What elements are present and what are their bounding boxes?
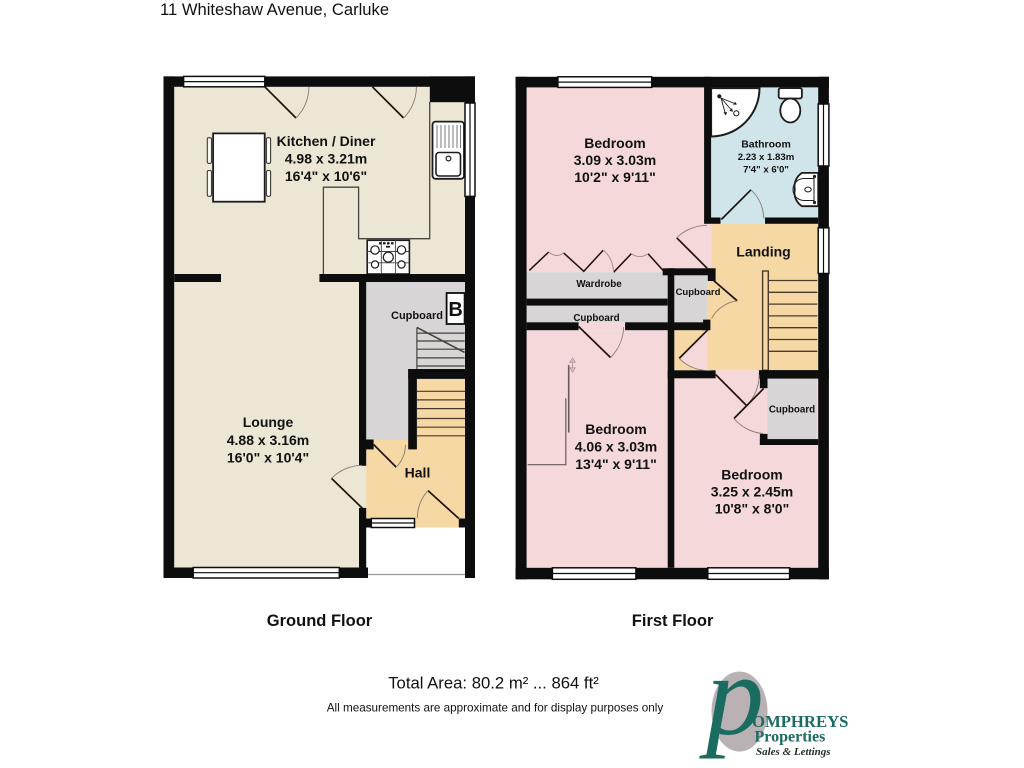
svg-text:Hall: Hall <box>405 465 431 481</box>
svg-text:Bathroom: Bathroom <box>741 139 791 151</box>
svg-text:4.06 x 3.03m: 4.06 x 3.03m <box>575 439 658 455</box>
svg-text:Bedroom: Bedroom <box>585 421 646 437</box>
svg-text:16'0" x 10'4": 16'0" x 10'4" <box>227 450 309 466</box>
svg-text:13'4" x 9'11": 13'4" x 9'11" <box>575 456 656 472</box>
svg-text:4.88 x 3.16m: 4.88 x 3.16m <box>227 432 310 448</box>
svg-text:10'8" x 8'0": 10'8" x 8'0" <box>715 501 789 517</box>
svg-text:3.25 x 2.45m: 3.25 x 2.45m <box>711 484 794 500</box>
svg-text:10'2" x 9'11": 10'2" x 9'11" <box>574 169 655 185</box>
svg-text:Total Area: 80.2 m² ... 864 ft: Total Area: 80.2 m² ... 864 ft² <box>388 674 599 693</box>
svg-text:First Floor: First Floor <box>632 612 714 630</box>
svg-text:Kitchen / Diner: Kitchen / Diner <box>277 133 376 149</box>
svg-text:B: B <box>448 299 462 321</box>
svg-text:Lounge: Lounge <box>243 414 294 430</box>
svg-text:11 Whiteshaw Avenue, Carluke: 11 Whiteshaw Avenue, Carluke <box>160 0 389 19</box>
svg-text:Cupboard: Cupboard <box>573 313 619 324</box>
svg-text:Bedroom: Bedroom <box>584 135 645 151</box>
svg-text:Bedroom: Bedroom <box>721 467 782 483</box>
svg-text:Cupboard: Cupboard <box>769 405 815 416</box>
svg-text:Cupboard: Cupboard <box>676 287 721 298</box>
svg-text:4.98 x 3.21m: 4.98 x 3.21m <box>285 151 368 167</box>
svg-text:7'4" x 6'0": 7'4" x 6'0" <box>743 164 789 175</box>
svg-text:Wardrobe: Wardrobe <box>576 279 622 290</box>
svg-text:Landing: Landing <box>736 244 790 260</box>
svg-text:Ground Floor: Ground Floor <box>267 612 373 630</box>
svg-text:Sales & Lettings: Sales & Lettings <box>756 746 831 758</box>
svg-text:Cupboard: Cupboard <box>391 310 443 322</box>
svg-text:All measurements are approxima: All measurements are approximate and for… <box>327 702 664 715</box>
svg-text:3.09 x 3.03m: 3.09 x 3.03m <box>574 152 657 168</box>
svg-text:16'4" x 10'6": 16'4" x 10'6" <box>285 168 367 184</box>
svg-text:2.23 x 1.83m: 2.23 x 1.83m <box>738 152 795 163</box>
svg-text:Properties: Properties <box>755 729 826 746</box>
